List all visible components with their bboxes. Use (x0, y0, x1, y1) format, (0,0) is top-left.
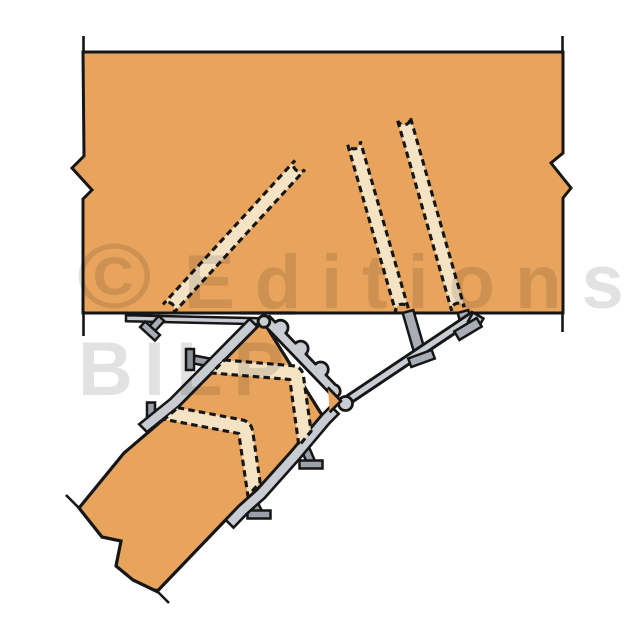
svg-text:Editions: Editions (184, 240, 640, 325)
svg-text:BILP: BILP (78, 327, 295, 412)
svg-text:©: © (77, 225, 152, 328)
